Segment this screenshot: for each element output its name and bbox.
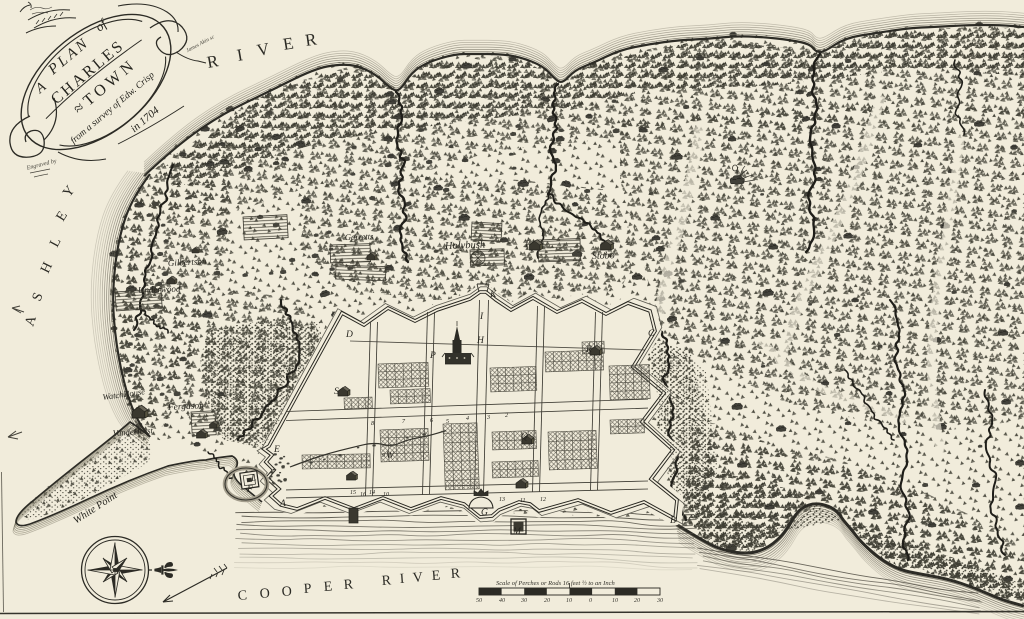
svg-text:T: T [524,240,530,250]
svg-text:14: 14 [369,489,375,496]
svg-text:P: P [303,581,312,597]
svg-text:16: 16 [360,492,366,498]
svg-text:S: S [334,387,339,397]
svg-text:F: F [246,485,253,495]
svg-text:Scale of Perches or Rods 16 fe: Scale of Perches or Rods 16 feet ½ to an… [496,580,615,587]
svg-text:13: 13 [499,497,505,503]
svg-text:12: 12 [540,497,546,503]
svg-text:11: 11 [520,498,526,504]
svg-text:V: V [412,570,423,586]
svg-text:9: 9 [382,453,385,459]
svg-text:0: 0 [589,598,592,604]
svg-text:H: H [476,336,485,346]
svg-text:Garretts: Garretts [345,231,375,242]
svg-text:E: E [323,579,333,595]
svg-text:4: 4 [466,415,469,422]
svg-text:20: 20 [544,598,550,604]
svg-text:R: R [450,566,461,582]
svg-text:8: 8 [371,421,374,427]
svg-text:K: K [489,290,497,300]
svg-text:10: 10 [612,598,618,604]
svg-text:Gilbertson: Gilbertson [168,256,207,268]
svg-text:O: O [259,586,270,602]
svg-text:30: 30 [656,598,663,604]
svg-text:3: 3 [486,415,490,421]
svg-text:W: W [386,451,395,461]
svg-text:R: R [343,577,354,593]
svg-text:M: M [512,527,522,537]
svg-text:6: 6 [430,418,433,424]
svg-text:R: R [381,573,392,589]
svg-text:Ferguson: Ferguson [167,401,205,413]
svg-text:E: E [431,568,441,584]
svg-text:O: O [281,584,292,600]
svg-text:Underwood: Underwood [138,284,181,295]
svg-text:L: L [250,474,256,484]
svg-text:20: 20 [634,598,640,604]
svg-text:B: B [670,516,676,526]
svg-text:C: C [648,329,655,339]
svg-text:15: 15 [350,490,356,496]
svg-text:E: E [273,445,280,455]
svg-text:P: P [429,351,436,361]
svg-text:2: 2 [505,413,508,419]
svg-text:D: D [345,330,353,340]
svg-text:40: 40 [499,597,505,604]
svg-text:Holybush: Holybush [444,240,486,252]
svg-text:Q: Q [521,432,528,442]
svg-text:R: R [585,345,592,355]
svg-text:A: A [279,499,286,509]
svg-text:G: G [481,508,488,518]
svg-text:30: 30 [520,598,527,604]
svg-text:Stobo: Stobo [592,250,615,262]
svg-text:10: 10 [383,492,389,498]
svg-text:C: C [237,588,247,604]
svg-text:10: 10 [566,598,572,604]
svg-text:50: 50 [476,598,482,604]
svg-text:5: 5 [446,419,449,425]
